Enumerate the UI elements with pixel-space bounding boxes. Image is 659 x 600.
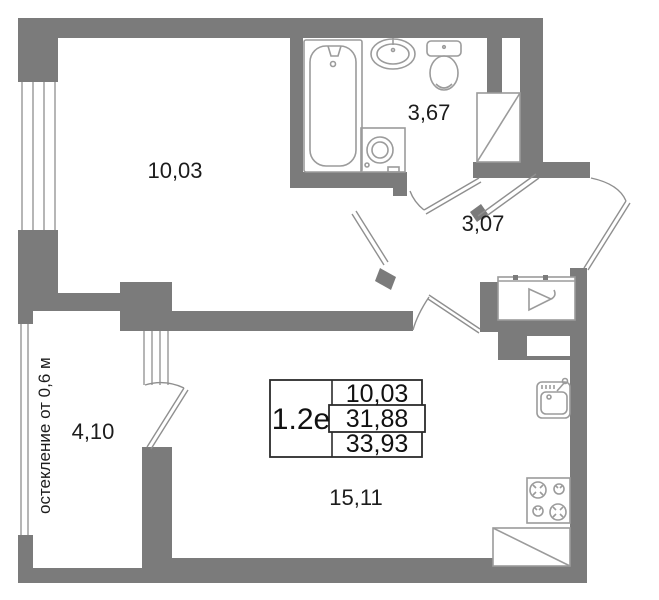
counter-icon bbox=[493, 528, 570, 566]
wall-bathroom-bottom bbox=[290, 172, 407, 188]
wall-bathroom-right bbox=[487, 38, 502, 93]
wall-bathroom-stub bbox=[393, 172, 407, 196]
glazing-bottom-block bbox=[18, 535, 33, 568]
area-value-main: 31,88 bbox=[346, 405, 409, 433]
balcony-door bbox=[145, 383, 188, 449]
hall-diagonal-partition-1 bbox=[352, 211, 388, 265]
floor-plan-canvas: 10,03 3,67 3,07 4,10 15,11 остекление от… bbox=[0, 0, 659, 600]
balcony-area-label: 4,10 bbox=[72, 419, 115, 444]
bathtub-icon bbox=[304, 40, 362, 172]
wardrobe-icon bbox=[498, 275, 575, 320]
kitchen-sink-icon bbox=[537, 379, 570, 419]
area-table: 1.2е 10,03 31,88 33,93 bbox=[270, 380, 425, 458]
floor-plan: 10,03 3,67 3,07 4,10 15,11 остекление от… bbox=[0, 0, 659, 600]
room-area-label: 10,03 bbox=[147, 158, 202, 183]
balcony-glazing bbox=[21, 324, 28, 535]
bathroom-area-label: 3,67 bbox=[408, 100, 451, 125]
room-window bbox=[22, 82, 55, 230]
wall-bathroom-left bbox=[290, 38, 303, 188]
bathroom-door bbox=[410, 178, 481, 214]
glazing-note: остекление от 0,6 м bbox=[35, 357, 54, 514]
wall-left-upper bbox=[18, 38, 58, 82]
partition-window bbox=[144, 331, 168, 385]
kitchen-living-area-label: 15,11 bbox=[329, 485, 382, 510]
closet-icon bbox=[477, 93, 520, 162]
entry-door bbox=[584, 178, 630, 270]
wall-top bbox=[18, 18, 543, 38]
hallway-area-label: 3,07 bbox=[462, 211, 505, 236]
living-room-door bbox=[413, 295, 480, 333]
wall-main-horizontal bbox=[142, 311, 413, 331]
wall-entry-top bbox=[473, 162, 590, 178]
stove-icon bbox=[527, 478, 570, 523]
wall-topright-vertical bbox=[520, 38, 543, 162]
area-value-total: 33,93 bbox=[346, 430, 409, 458]
washing-machine-icon bbox=[361, 128, 405, 172]
wall-balcony-partition bbox=[142, 447, 172, 570]
toilet-icon bbox=[427, 41, 461, 90]
area-value-living: 10,03 bbox=[346, 380, 409, 408]
wall-wardrobe-bottom bbox=[488, 320, 570, 332]
sink-icon bbox=[371, 38, 415, 69]
wall-diagonal-post-1 bbox=[375, 268, 396, 290]
unit-id-cell: 1.2е bbox=[272, 403, 330, 436]
glazing-top-block bbox=[18, 311, 33, 324]
shaft-niche bbox=[527, 336, 570, 356]
wall-balcony-bottom bbox=[18, 568, 170, 583]
